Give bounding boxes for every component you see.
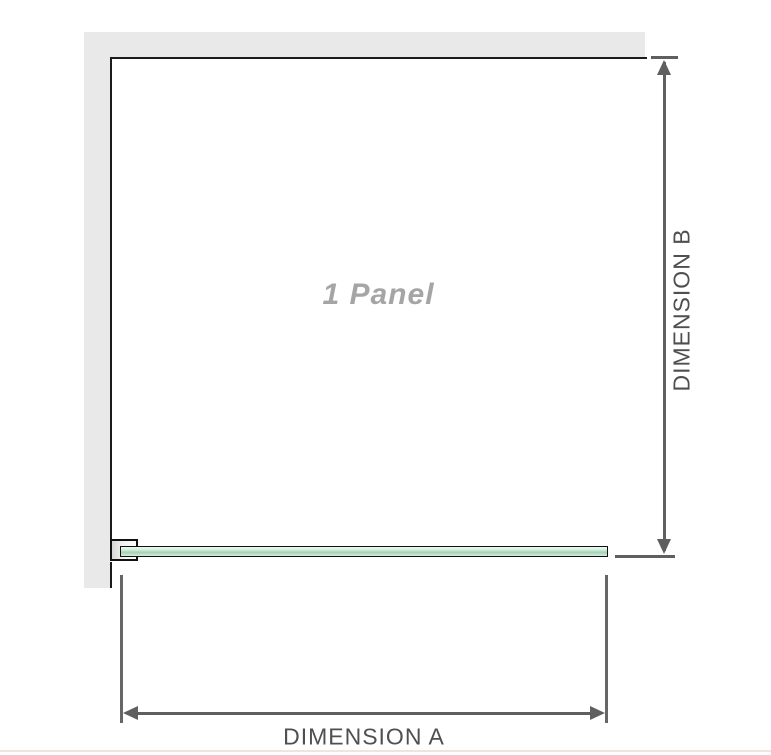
panel-outline-top-edge: [110, 57, 647, 59]
dimension-b-label: DIMENSION B: [669, 228, 696, 391]
dimension-a-extension-line-right: [605, 575, 608, 723]
bottom-separator-line: [0, 750, 771, 752]
dimension-b-arrowhead-bottom: [657, 539, 671, 554]
dimension-a-arrowhead-right: [590, 706, 605, 720]
dimension-a-label: DIMENSION A: [283, 724, 445, 751]
dimension-a-line: [130, 712, 598, 715]
wall-left-band: [84, 32, 110, 588]
dimension-a-arrowhead-left: [123, 706, 138, 720]
shower-panel-diagram: 1 Panel DIMENSION B DIMENSION A: [0, 0, 771, 755]
panel-count-label: 1 Panel: [110, 278, 647, 312]
wall-top-band: [84, 32, 645, 58]
dimension-a-extension-line-left: [120, 575, 123, 723]
panel-outline-left-edge-lower: [110, 562, 112, 588]
dimension-b-line: [663, 62, 666, 551]
dimension-b-tick-bottom: [615, 555, 675, 558]
dimension-b-arrowhead-top: [657, 60, 671, 75]
dimension-b-tick-top: [651, 56, 678, 59]
glass-panel: [120, 546, 608, 557]
